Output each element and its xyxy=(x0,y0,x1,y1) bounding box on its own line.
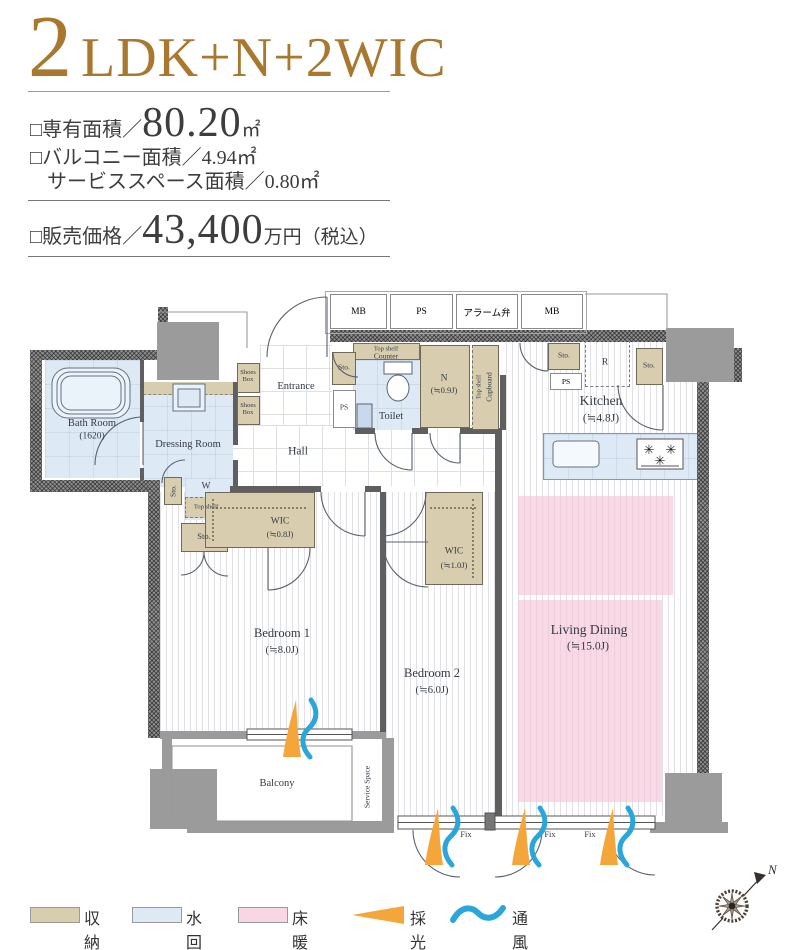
cupboard-label: Cupboard xyxy=(485,372,494,402)
storage-door-arc xyxy=(204,552,228,576)
shoes-box-label: Shoes Box xyxy=(237,370,259,384)
service-area-line: サービススペース面積／0.80㎡ xyxy=(47,165,320,194)
bedroom1-door-arc xyxy=(321,492,365,536)
wic-small-size: (≒0.8J) xyxy=(267,530,294,540)
compass-north-label: N xyxy=(767,862,778,877)
unit-outline xyxy=(158,312,247,348)
wic-large-label: WIC xyxy=(445,547,463,558)
legend-water-label: 水回り xyxy=(186,905,202,950)
unit-count: 2 xyxy=(28,6,73,90)
dressing-room-label: Dressing Room xyxy=(155,439,221,451)
toilet-door-arc xyxy=(375,433,412,470)
storage-label: Sto. xyxy=(169,485,178,497)
storage-door-arc xyxy=(181,552,204,575)
price-line: □販売価格／ 43,400 万円（税込） xyxy=(30,206,378,254)
hall-label: Hall xyxy=(288,445,308,458)
legend-floor-heating-label: 床暖房 xyxy=(292,905,308,950)
entrance-door-arc xyxy=(267,297,327,357)
divider xyxy=(28,256,390,257)
dressing-door-arc xyxy=(162,460,185,483)
legend-ventilation-label: 通風 xyxy=(512,905,528,950)
area-label: □専有面積／ xyxy=(30,113,142,142)
area-value: 80.20 xyxy=(142,99,242,147)
unit-layout: LDK+N+2WIC xyxy=(81,26,447,90)
toilet-label: Toilet xyxy=(379,411,403,423)
area-unit: ㎡ xyxy=(242,115,261,142)
legend-ventilation-icon xyxy=(450,903,506,927)
legend-daylight-icon xyxy=(352,906,404,924)
wic-small-label: WIC xyxy=(271,517,289,528)
wic-small-door-arc xyxy=(268,548,310,590)
window-mullion xyxy=(485,813,495,830)
daylight-ventilation-arrows xyxy=(283,700,633,865)
kitchen-size: (≒4.8J) xyxy=(583,412,619,425)
n-room-size: (≒0.9J) xyxy=(431,386,458,396)
balcony-label: Balcony xyxy=(260,778,295,790)
pipe-space-label: PS xyxy=(340,404,348,413)
fix-window-label: Fix xyxy=(544,830,555,840)
kitchen-entry-door-arc xyxy=(520,343,548,371)
counter-label: Counter xyxy=(374,353,398,362)
stove-burner-icon: ✳ xyxy=(666,442,677,457)
floor-plan-page: 2 LDK+N+2WIC □専有面積／ 80.20 ㎡ □バルコニー面積／4.9… xyxy=(0,0,788,950)
kitchen-sink xyxy=(553,441,599,467)
page-title: 2 LDK+N+2WIC xyxy=(28,6,447,90)
storage-label: Sto. xyxy=(197,532,210,542)
living-dining-size: (≒15.0J) xyxy=(567,640,609,653)
toilet-sink xyxy=(357,404,372,428)
stove-burner-icon: ✳ xyxy=(644,442,655,457)
stove: ✳ ✳ ✳ xyxy=(637,439,683,469)
fix-window-label: Fix xyxy=(460,830,471,840)
refrigerator-label: R xyxy=(602,358,608,369)
top-shelf-label: Top shelf xyxy=(194,503,218,510)
price-unit: 万円（税込） xyxy=(264,222,378,249)
living-dining-label: Living Dining xyxy=(551,622,628,638)
price-label: □販売価格／ xyxy=(30,220,142,249)
bedroom2-label: Bedroom 2 xyxy=(404,666,460,680)
washer-label: W xyxy=(202,482,211,493)
compass-icon: N xyxy=(700,860,782,940)
divider xyxy=(28,200,390,201)
storage-label: Sto. xyxy=(338,364,350,373)
kitchen-storage-door-arc xyxy=(618,385,663,430)
bedroom1-label: Bedroom 1 xyxy=(254,626,310,640)
wic-large-door-arc xyxy=(383,542,428,587)
legend-storage-label: 収納 xyxy=(84,905,100,950)
unit-outline xyxy=(585,294,667,328)
price-value: 43,400 xyxy=(142,206,264,254)
n-room-door-arc xyxy=(430,433,460,463)
storage-label: Sto. xyxy=(643,362,655,371)
bath-room-label: Bath Room xyxy=(68,418,116,430)
legend-storage-swatch xyxy=(30,907,80,923)
divider xyxy=(28,91,390,92)
legend-floor-heating-swatch xyxy=(238,907,288,923)
area-line: □専有面積／ 80.20 ㎡ xyxy=(30,99,261,147)
washbasin xyxy=(173,384,205,411)
plan-linework: ✳ ✳ ✳ xyxy=(30,280,746,886)
wic-large-size: (≒1.0J) xyxy=(441,561,468,571)
legend-water-swatch xyxy=(132,907,182,923)
service-space-label: Service Space xyxy=(363,766,372,808)
bedroom1-size: (≒8.0J) xyxy=(265,645,298,657)
bedroom2-size: (≒6.0J) xyxy=(415,685,448,697)
bedroom2-door-arc xyxy=(382,492,426,536)
storage-label: Sto. xyxy=(558,352,570,361)
shoes-box-label: Shoes Box xyxy=(237,403,259,417)
top-shelf-label: Top shelf xyxy=(476,375,483,399)
stove-burner-icon: ✳ xyxy=(655,453,666,468)
n-room-label: N xyxy=(441,374,448,385)
bath-room-size: (1620) xyxy=(79,432,104,443)
legend-daylight-label: 採光 xyxy=(410,905,426,950)
kitchen-label: Kitchen xyxy=(580,393,623,409)
fix-window-label: Fix xyxy=(584,830,595,840)
bathtub xyxy=(52,368,130,418)
entrance-label: Entrance xyxy=(277,381,314,393)
floor-plan: MB PS アラーム弁 MB PS xyxy=(30,280,746,886)
